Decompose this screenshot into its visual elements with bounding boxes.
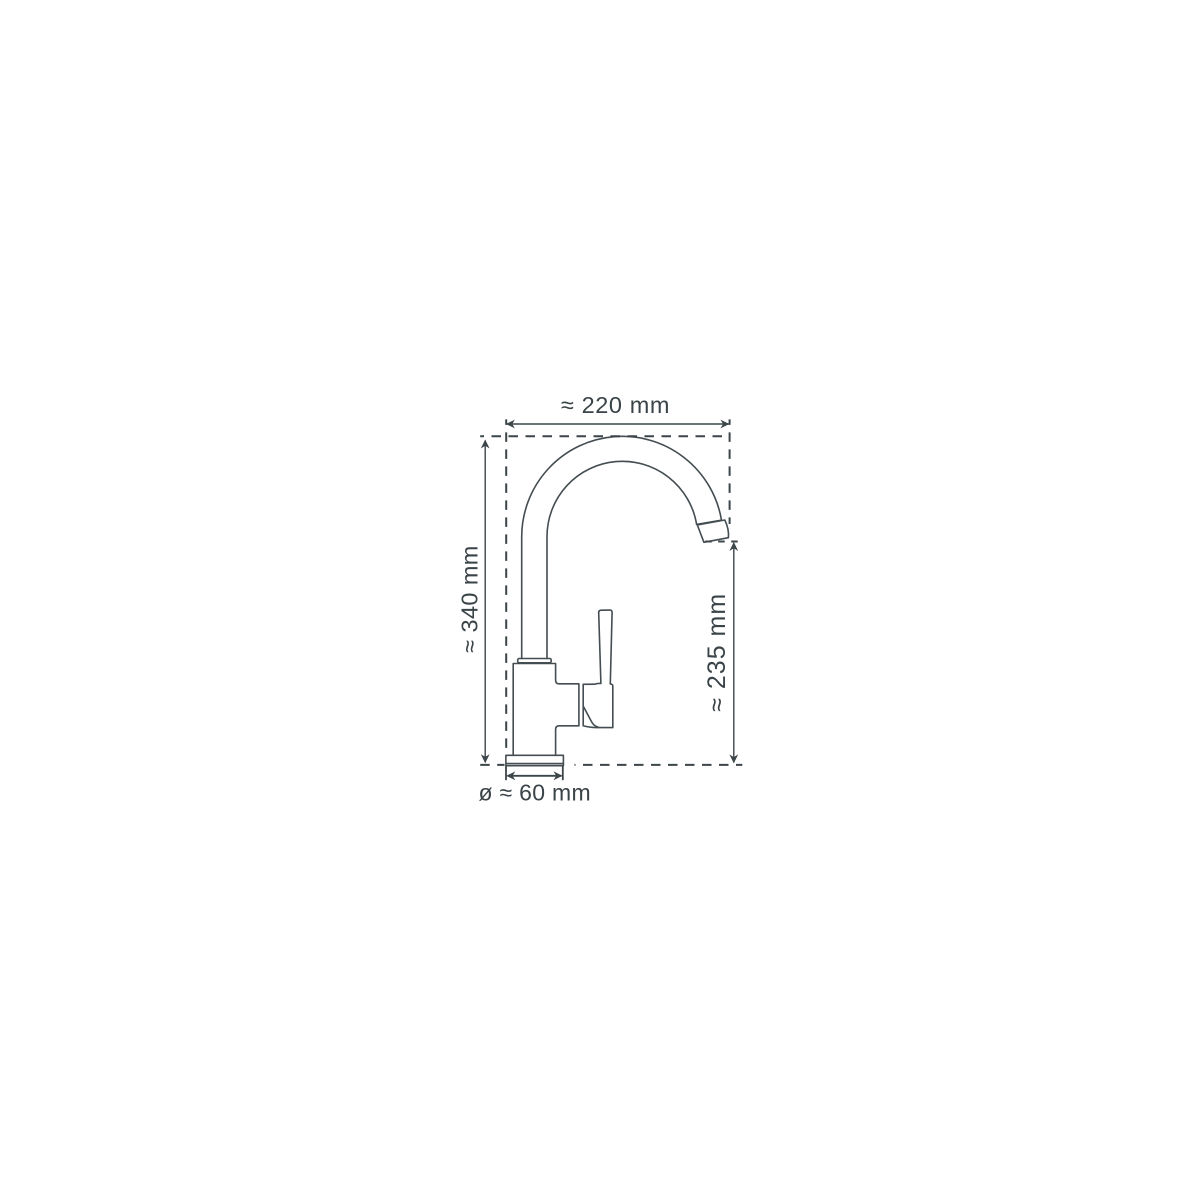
svg-text:≈ 220 mm: ≈ 220 mm — [561, 392, 670, 418]
svg-text:≈ 340 mm: ≈ 340 mm — [456, 545, 482, 653]
svg-text:≈ 235 mm: ≈ 235 mm — [703, 593, 731, 712]
svg-text:ø ≈ 60 mm: ø ≈ 60 mm — [478, 779, 590, 805]
